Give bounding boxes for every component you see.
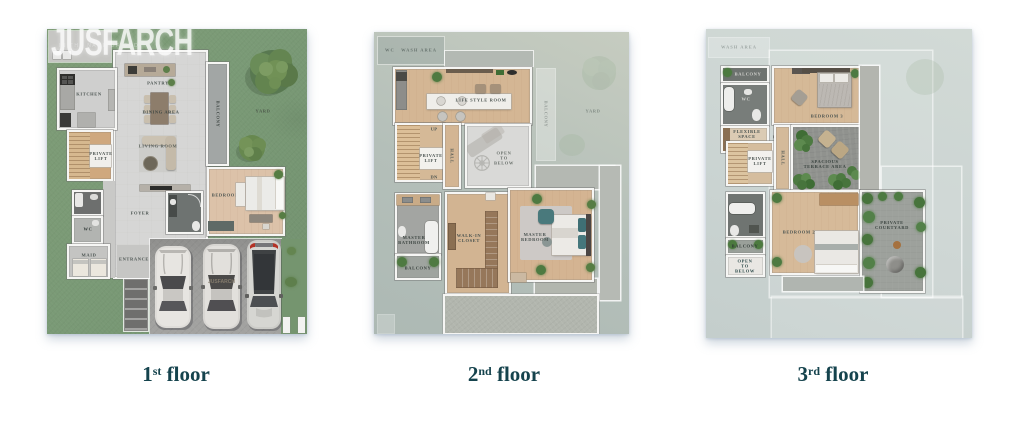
svg-text:JUSFARCH: JUSFARCH (208, 279, 235, 285)
